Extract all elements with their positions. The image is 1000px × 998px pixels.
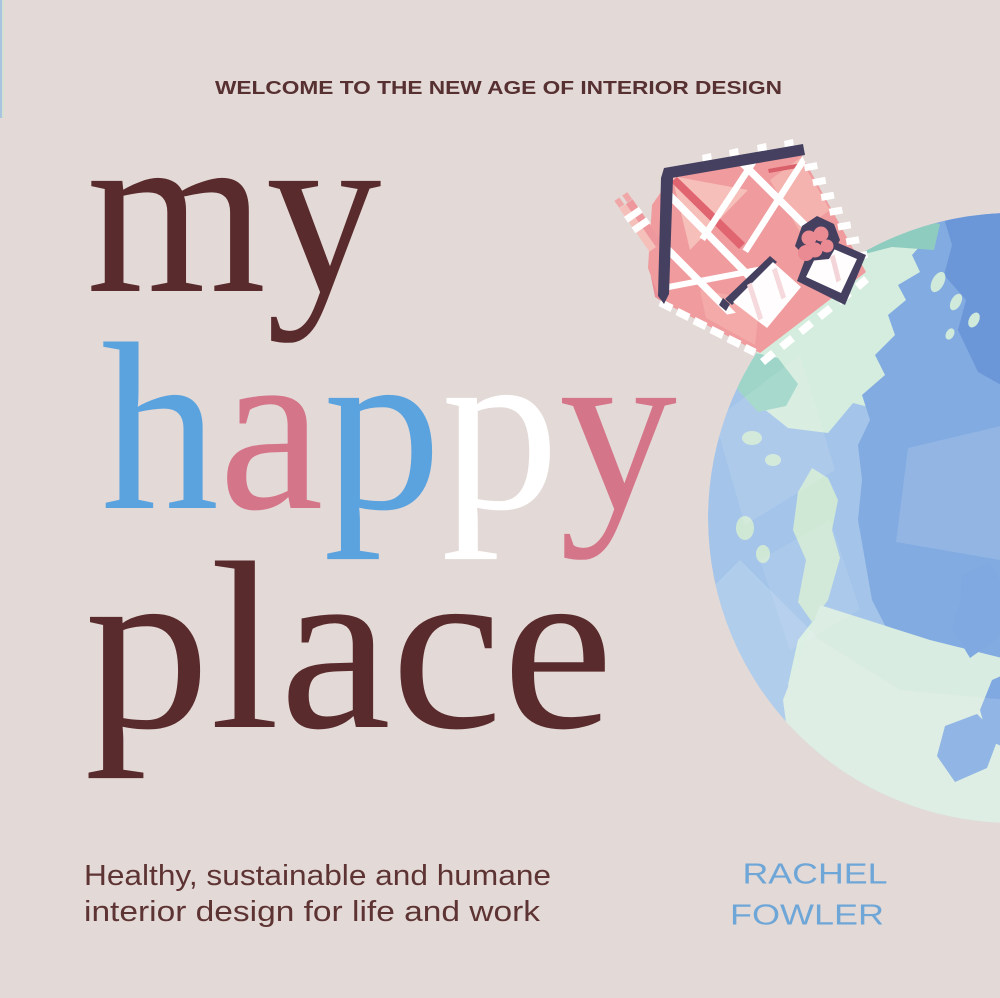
svg-text:interior design for life and w: interior design for life and work — [84, 896, 541, 928]
svg-text:place: place — [85, 513, 614, 779]
svg-text:Healthy, sustainable and human: Healthy, sustainable and humane — [84, 860, 551, 892]
svg-text:FOWLER: FOWLER — [730, 899, 884, 931]
svg-text:RACHEL: RACHEL — [743, 858, 888, 890]
